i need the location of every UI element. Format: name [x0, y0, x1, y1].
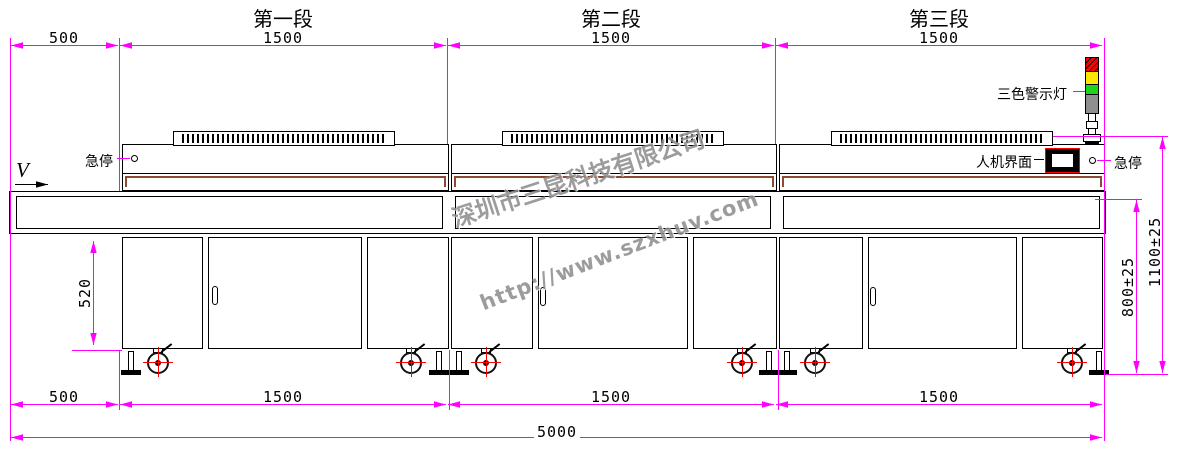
- foot-plate: [121, 370, 141, 375]
- section-title-3: 第三段: [909, 3, 969, 32]
- dim-label-top-1500-2: 1500: [591, 29, 631, 47]
- belt-rail-section-1: [122, 173, 449, 191]
- estop-label-right: 急停: [1114, 153, 1142, 173]
- dim-label-top-1500-1: 1500: [263, 29, 303, 47]
- leveling-foot: [784, 351, 790, 371]
- dim-label-top-1500-3: 1500: [919, 29, 959, 47]
- direction-label: V: [16, 158, 29, 183]
- door-handle: [870, 287, 876, 306]
- leveling-foot: [456, 351, 462, 371]
- foot-plate: [1089, 370, 1109, 375]
- dim-label-top-500: 500: [49, 29, 79, 47]
- door-handle: [212, 286, 218, 305]
- cabinet-panel: [779, 237, 863, 349]
- vent-strip-1: [173, 131, 395, 146]
- dim-label-520: 520: [76, 278, 94, 308]
- conveyor-inner-segment-1: [16, 196, 443, 229]
- foot-plate: [449, 370, 469, 375]
- belt-rail-section-3: [779, 173, 1105, 191]
- warning-light-base: [1085, 141, 1099, 145]
- section-title-2: 第二段: [581, 3, 641, 32]
- warning-light-yellow-segment: [1085, 71, 1099, 85]
- vent-strip-3: [831, 131, 1053, 146]
- warning-light-red-segment: [1085, 57, 1099, 72]
- dim-label-800: 800±25: [1119, 257, 1137, 317]
- conveyor-inner-segment-3: [783, 196, 1100, 229]
- belt-trim-1: [125, 176, 446, 187]
- dim-label-bottom-1500-3: 1500: [919, 388, 959, 406]
- estop-label-left: 急停: [85, 151, 113, 171]
- leveling-foot: [766, 351, 772, 371]
- cabinet-door: [868, 237, 1017, 349]
- hood-section-1: [122, 144, 449, 174]
- foot-plate: [759, 370, 779, 375]
- dim-label-bottom-1500-1: 1500: [263, 388, 303, 406]
- leveling-foot: [128, 351, 134, 371]
- hmi-screen: [1045, 148, 1080, 173]
- foot-plate: [429, 370, 449, 375]
- dim-label-overall-5000: 5000: [534, 423, 580, 441]
- estop-button-left: [131, 155, 138, 162]
- leveling-foot: [1096, 351, 1102, 371]
- engineering-drawing-canvas: 第一段 第二段 第三段 500 1500 1500 1500 500 1500 …: [0, 0, 1177, 449]
- dim-label-bottom-500: 500: [49, 388, 79, 406]
- cabinet-panel: [693, 237, 777, 349]
- warning-light-body: [1085, 94, 1099, 114]
- foot-plate: [777, 370, 797, 375]
- estop-button-right: [1089, 157, 1096, 164]
- cabinet-door: [208, 237, 362, 349]
- warning-light-label: 三色警示灯: [997, 84, 1067, 104]
- section-title-1: 第一段: [253, 3, 313, 32]
- cabinet-panel: [1022, 237, 1103, 349]
- hmi-label: 人机界面: [976, 152, 1032, 172]
- cabinet-panel: [367, 237, 449, 349]
- leveling-foot: [436, 351, 442, 371]
- cabinet-panel: [122, 237, 203, 349]
- dim-label-1100: 1100±25: [1146, 217, 1164, 287]
- belt-trim-3: [782, 176, 1102, 187]
- dim-label-bottom-1500-2: 1500: [591, 388, 631, 406]
